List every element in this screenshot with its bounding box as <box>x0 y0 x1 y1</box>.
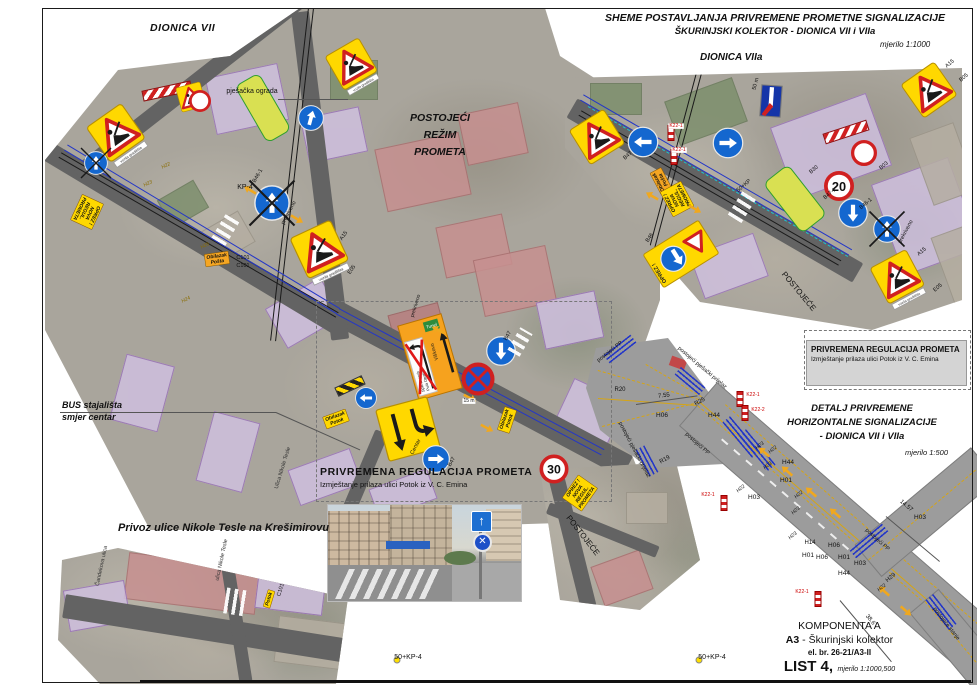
photo-building <box>390 505 452 569</box>
map-label: K22-1 <box>746 392 759 397</box>
map-label: K22-1 <box>671 147 686 152</box>
leader-line <box>278 99 348 100</box>
map-label: K22-1 <box>668 123 683 128</box>
detail-title: DETALJ PRIVREMENE HORIZONTALNE SIGNALIZA… <box>758 402 966 460</box>
temp-regulation-sub: Izmještanje prilaza ulici Potok iz V. C.… <box>320 480 532 489</box>
svg-text:30: 30 <box>547 463 561 477</box>
sheet-title-line1: SHEME POSTAVLJANJA PRIVREMENE PROMETNE S… <box>585 12 965 24</box>
map-label: H01 <box>838 555 850 562</box>
sheet-title-line2: ŠKURINJSKI KOLEKTOR - DIONICA VII i VIIa <box>585 26 965 37</box>
map-label: R20 <box>614 387 625 393</box>
komponenta-rest: - Škurinjski kolektor <box>799 634 893 646</box>
photo-sidewalk <box>452 563 521 601</box>
map-label: 50+KP-4 <box>698 654 725 661</box>
map-label: H01 <box>802 553 814 560</box>
bus-note-line1: BUS stajališta <box>62 399 122 411</box>
sign-covered <box>84 151 108 175</box>
building-patch <box>626 492 668 524</box>
sign-k22 <box>815 591 822 607</box>
detail-title-line1: DETALJ PRIVREMENE <box>758 402 966 416</box>
building-patch <box>590 549 653 606</box>
bus-stop-note: BUS stajališta smjer centar <box>62 399 122 423</box>
section-label-vii: DIONICA VII <box>150 22 215 34</box>
existing-line1: POSTOJEĆI <box>385 110 495 127</box>
map-label: C101 <box>236 255 249 261</box>
sign-blue-arrow <box>355 387 377 409</box>
right-note-title: PRIVREMENA REGULACIJA PROMETA <box>811 345 966 354</box>
map-label: H44 <box>708 413 720 420</box>
map-label: H03 <box>914 515 926 522</box>
sheet-scale: mjerilo 1:1000 <box>880 40 930 49</box>
street-photo-inset: ↑ ✕ <box>327 504 522 602</box>
sign-blue-arrow <box>713 128 744 159</box>
komponenta-sub: A3 - Škurinjski kolektor <box>742 634 937 646</box>
privoz-note: Privoz ulice Nikole Tesle na Krešimirovu <box>118 522 329 534</box>
list-scale: mjerilo 1:1000,500 <box>838 666 896 673</box>
temp-regulation-title: PRIVREMENA REGULACIJA PROMETA <box>320 466 532 478</box>
map-label: H23 <box>788 531 798 541</box>
sign-covered <box>873 215 901 243</box>
map-label: H06 <box>816 555 828 562</box>
sign-circle-empty <box>851 140 877 166</box>
photo-shop-band <box>386 541 430 549</box>
photo-sign-restriction: ✕ <box>473 533 492 552</box>
map-label: H01 <box>780 478 792 485</box>
bus-note-line2: smjer centar <box>62 411 122 423</box>
sign-k22 <box>742 405 749 421</box>
map-label: H14 <box>804 540 815 546</box>
map-label: KP-4 <box>237 184 253 191</box>
detail-title-line3: - DIONICA VII i VIIa <box>758 430 966 444</box>
existing-line2: REŽIM <box>385 127 495 144</box>
building-patch <box>196 411 261 493</box>
building-patch <box>931 224 977 325</box>
temp-regulation-note: PRIVREMENA REGULACIJA PROMETA Izmještanj… <box>320 466 532 489</box>
right-note-box: PRIVREMENA REGULACIJA PROMETA Izmještanj… <box>806 340 967 386</box>
title-block: KOMPONENTA A A3 - Škurinjski kolektor el… <box>742 620 937 676</box>
right-note-sub: Izmještanje prilaza ulici Potok iz V. C.… <box>811 356 966 363</box>
map-label: H03 <box>854 561 866 568</box>
map-label: H06 <box>656 413 668 420</box>
list-row: LIST 4, mjerilo 1:1000,500 <box>742 658 937 676</box>
photo-bush <box>444 551 476 565</box>
section-label-viia: DIONICA VIIa <box>700 52 762 63</box>
map-label: H44 <box>838 571 850 578</box>
map-label: A15 <box>944 59 955 70</box>
map-label: H44 <box>782 460 794 467</box>
map-label: C101 <box>236 263 249 269</box>
map-label: 50+KP-4 <box>394 654 421 661</box>
sign-circle-empty <box>189 90 211 112</box>
photo-crosswalk <box>335 569 445 599</box>
map-label: K22-1 <box>795 589 808 594</box>
existing-regime-note: POSTOJEĆI REŽIM PROMETA <box>385 110 495 161</box>
list-number: LIST 4, <box>784 658 833 675</box>
map-label: pješačka ograda <box>226 88 277 95</box>
sign-zebra <box>223 587 249 616</box>
map-label: K22-1 <box>701 492 714 497</box>
sign-k22 <box>721 495 728 511</box>
el-br: el. br. 26-21/A3-II <box>742 648 937 657</box>
sheet-title: SHEME POSTAVLJANJA PRIVREMENE PROMETNE S… <box>585 12 965 37</box>
map-label: H22 <box>736 484 746 494</box>
plan-sheet: { "sheet": { "title_line1": "SHEME POSTA… <box>0 0 977 685</box>
map-label: H06 <box>828 543 840 550</box>
komponenta-title: KOMPONENTA A <box>742 620 937 632</box>
photo-sign-ahead-only: ↑ <box>471 511 492 532</box>
detail-scale: mjerilo 1:500 <box>758 446 966 460</box>
sign-blue-flag <box>759 84 783 117</box>
sign-blue-arrow <box>298 105 324 131</box>
detail-title-line2: HORIZONTALNE SIGNALIZACIJE <box>758 416 966 430</box>
map-label: H03 <box>748 495 760 502</box>
photo-building <box>328 511 392 569</box>
sheet-frame-bottom <box>140 680 971 683</box>
existing-line3: PROMETA <box>385 144 495 161</box>
komponenta-a3: A3 <box>786 634 799 646</box>
map-label: 15 m <box>462 398 475 403</box>
sign-speed: 30 <box>540 455 569 484</box>
